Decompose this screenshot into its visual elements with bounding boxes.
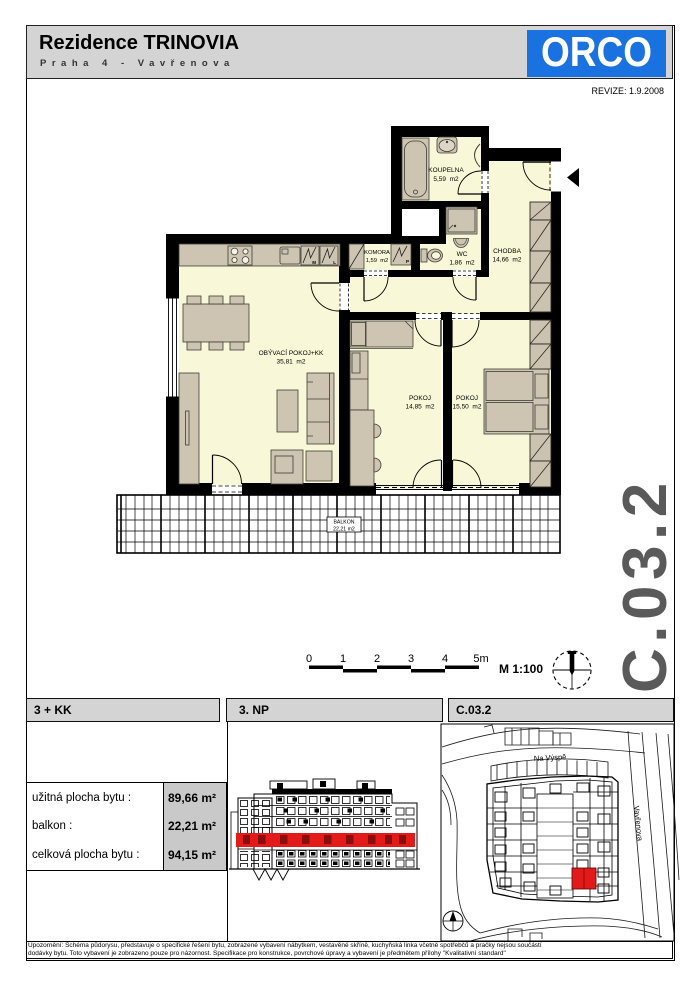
svg-text:14,66 m2: 14,66 m2 [493, 257, 522, 264]
svg-text:4: 4 [442, 653, 448, 665]
svg-text:L: L [333, 260, 336, 265]
svg-text:35,81 m2: 35,81 m2 [277, 359, 306, 366]
svg-text:POKOJ: POKOJ [409, 395, 431, 402]
svg-text:WC: WC [457, 251, 468, 258]
svg-text:5,59 m2: 5,59 m2 [433, 176, 459, 183]
svg-text:2: 2 [374, 653, 380, 665]
svg-text:1: 1 [340, 653, 346, 665]
svg-text:P: P [406, 259, 409, 264]
svg-text:CHODBA: CHODBA [493, 248, 521, 255]
svg-text:M: M [312, 260, 316, 265]
svg-text:1,59 m2: 1,59 m2 [366, 258, 389, 264]
svg-text:1,86 m2: 1,86 m2 [449, 260, 475, 267]
svg-text:14,85 m2: 14,85 m2 [406, 404, 435, 411]
svg-text:POKOJ: POKOJ [456, 395, 478, 402]
svg-text:3: 3 [408, 653, 414, 665]
svg-text:M 1:100: M 1:100 [499, 662, 543, 676]
svg-text:BALKON: BALKON [333, 520, 354, 526]
svg-text:5m: 5m [473, 653, 488, 665]
svg-text:KOMORA: KOMORA [364, 250, 390, 256]
svg-text:Na Výspě: Na Výspě [534, 752, 567, 763]
svg-text:22,21 m2: 22,21 m2 [333, 527, 355, 533]
svg-text:KOUPELNA: KOUPELNA [428, 167, 464, 174]
svg-text:OBÝVACÍ POKOJ+KK: OBÝVACÍ POKOJ+KK [259, 348, 324, 357]
svg-text:0: 0 [306, 653, 312, 665]
svg-text:15,50 m2: 15,50 m2 [453, 404, 482, 411]
